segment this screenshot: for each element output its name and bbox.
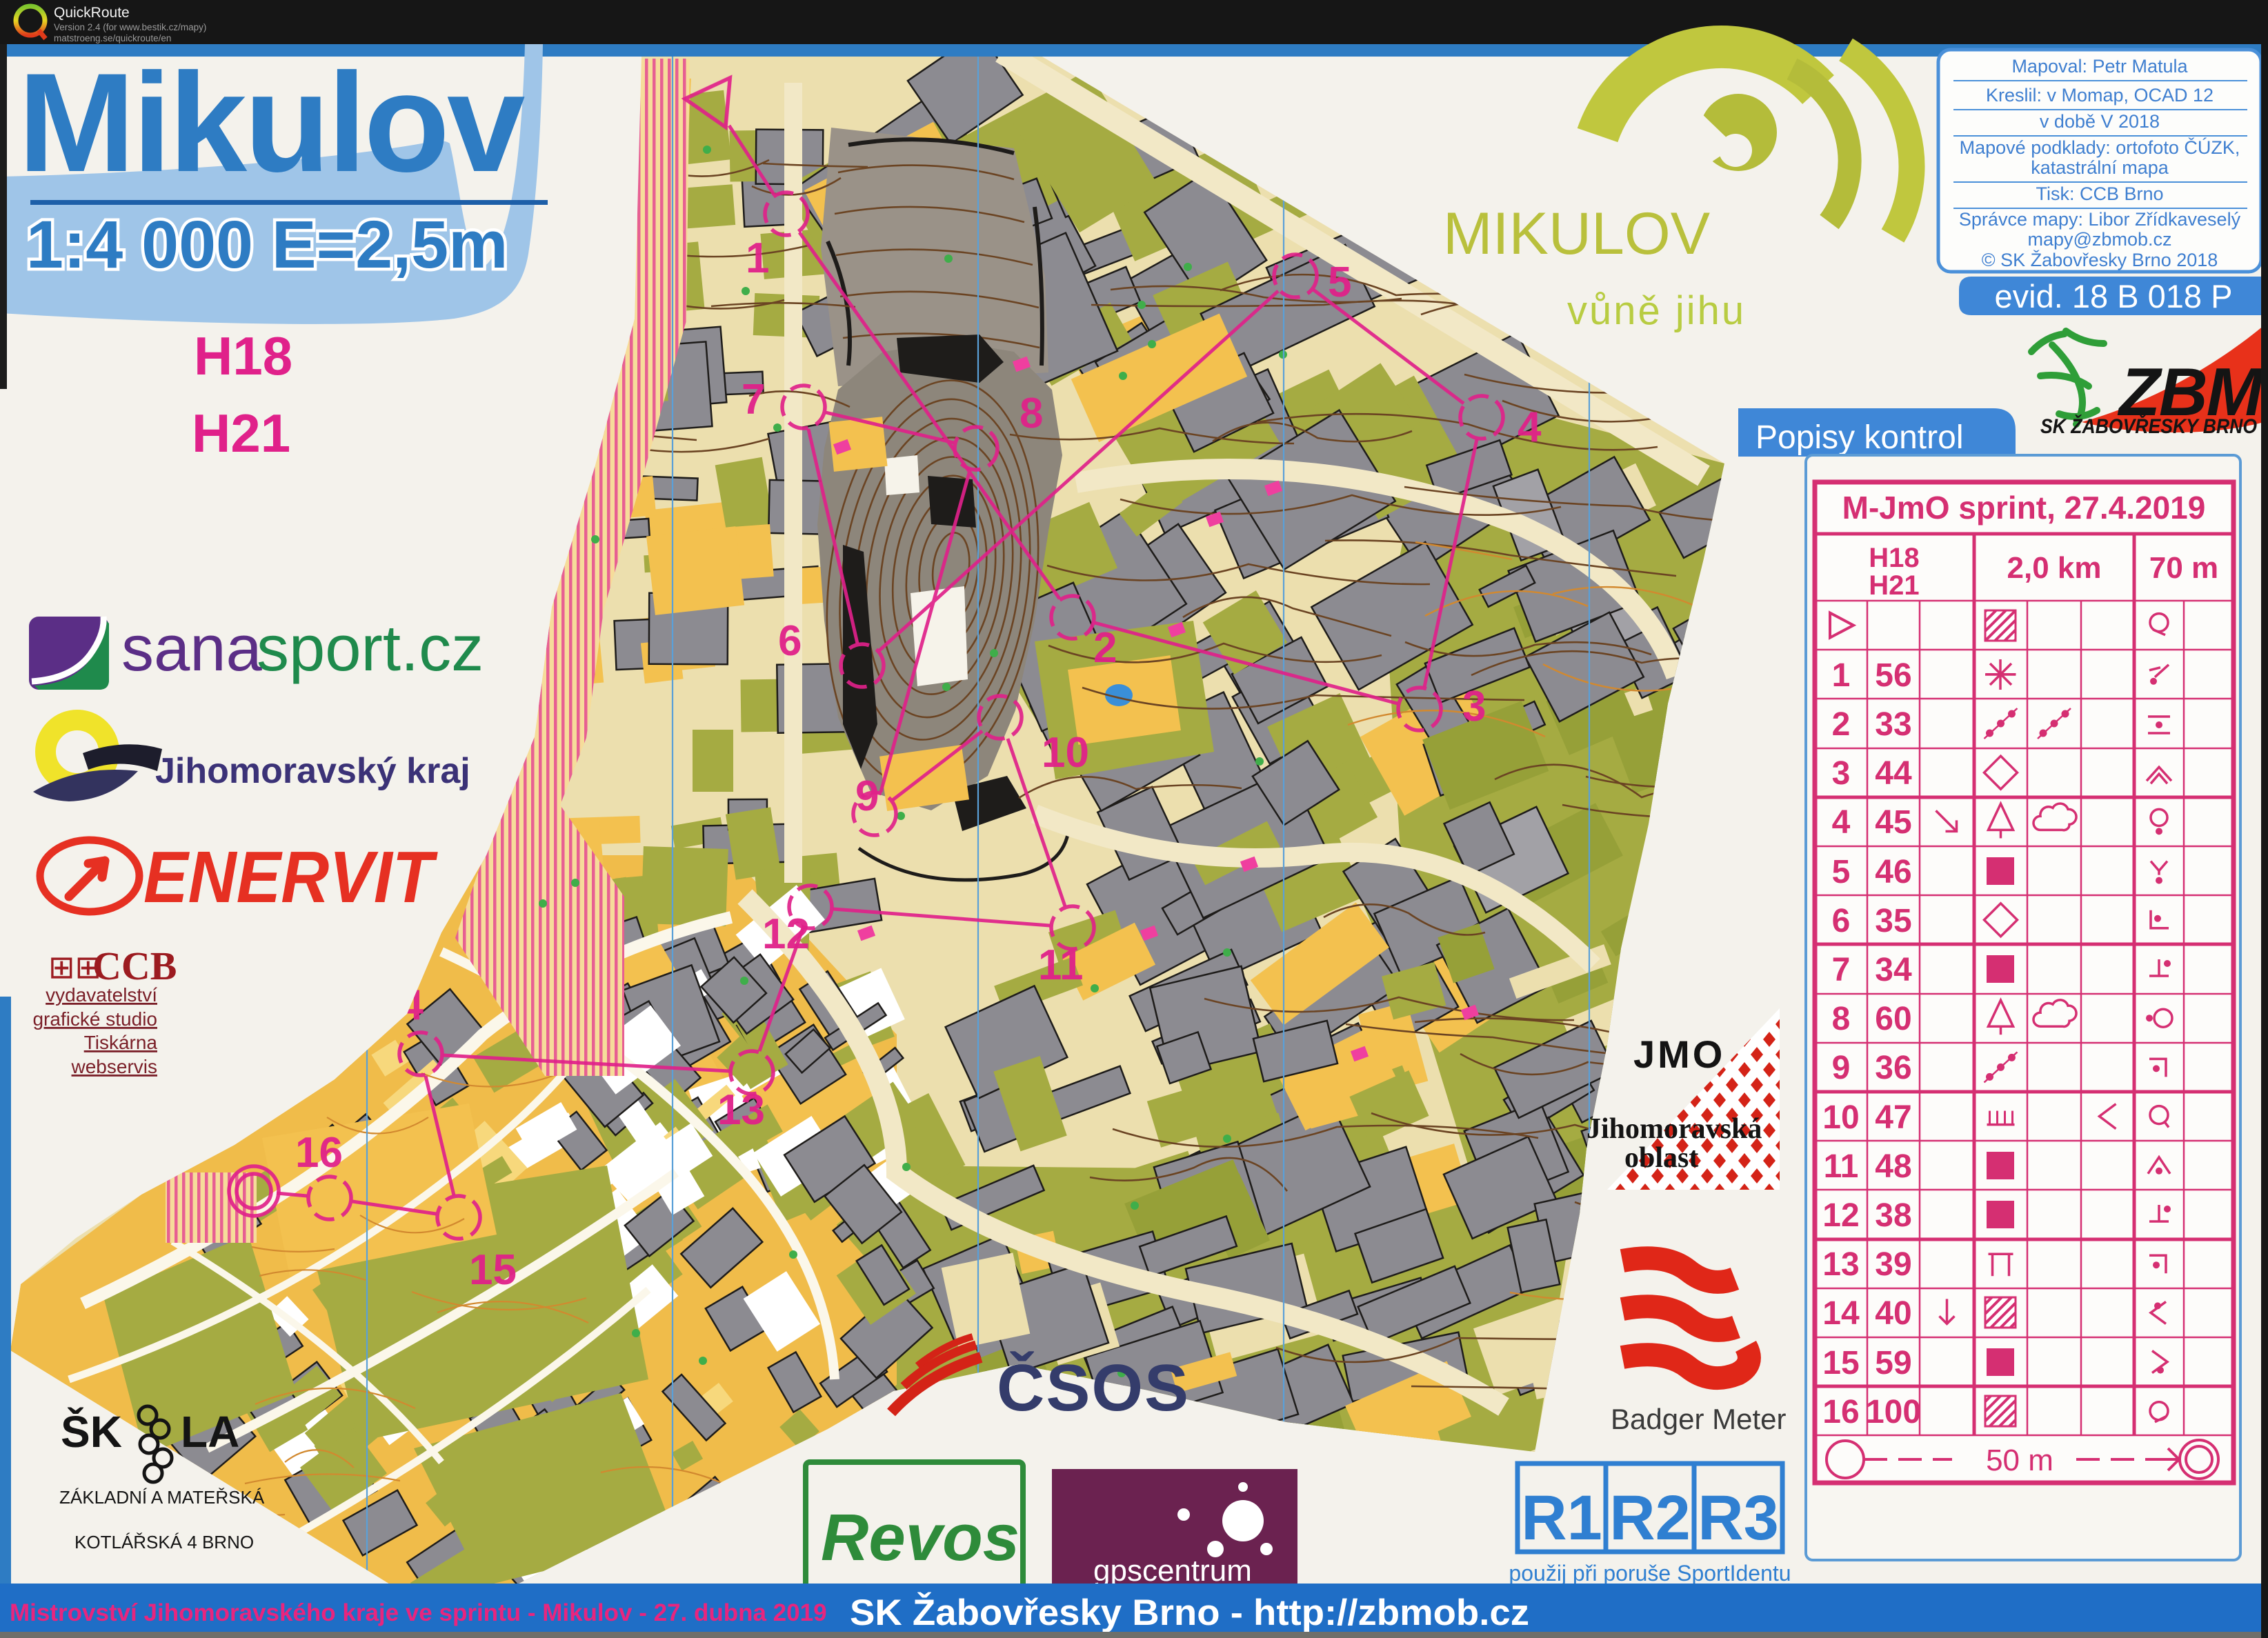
svg-text:evid. 18 B 018 P: evid. 18 B 018 P <box>1995 278 2233 314</box>
svg-text:4: 4 <box>1518 403 1542 451</box>
svg-text:60: 60 <box>1875 1001 1911 1037</box>
svg-text:Mikulov: Mikulov <box>18 44 525 201</box>
svg-text:7: 7 <box>742 376 765 423</box>
svg-text:Správce mapy: Libor Zřídkavese: Správce mapy: Libor Zřídkaveselý <box>1959 209 2241 230</box>
svg-text:6: 6 <box>778 617 802 665</box>
svg-text:11: 11 <box>1824 1148 1859 1185</box>
svg-text:© SK Žabovřesky Brno 2018: © SK Žabovřesky Brno 2018 <box>1982 249 2218 270</box>
svg-text:Mistrovství Jihomoravského kra: Mistrovství Jihomoravského kraje ve spri… <box>10 1599 827 1626</box>
svg-text:ENERVIT: ENERVIT <box>143 837 439 918</box>
svg-text:v době V 2018: v době V 2018 <box>2040 111 2160 132</box>
svg-text:QuickRoute: QuickRoute <box>54 5 130 21</box>
svg-text:MIKULOV: MIKULOV <box>1443 201 1710 267</box>
svg-text:2,0 km: 2,0 km <box>2007 551 2102 585</box>
svg-text:webservis: webservis <box>71 1056 157 1077</box>
svg-text:50 m: 50 m <box>1986 1444 2053 1477</box>
svg-text:1:4 000 E=2,5m: 1:4 000 E=2,5m <box>26 207 508 282</box>
svg-text:8: 8 <box>1019 390 1043 437</box>
svg-text:56: 56 <box>1875 657 1911 694</box>
svg-text:sport.cz: sport.cz <box>257 612 484 684</box>
svg-text:2: 2 <box>1093 624 1117 672</box>
svg-text:CCB: CCB <box>92 943 177 988</box>
svg-text:SK Žabovřesky Brno - http://zb: SK Žabovřesky Brno - http://zbmob.cz <box>850 1591 1529 1633</box>
svg-text:16: 16 <box>295 1129 343 1177</box>
svg-text:vydavatelství: vydavatelství <box>46 984 157 1006</box>
svg-text:Jihomoravský kraj: Jihomoravský kraj <box>155 751 470 791</box>
svg-text:H21: H21 <box>1869 570 1919 601</box>
svg-text:SK ŽABOVŘESKY BRNO: SK ŽABOVŘESKY BRNO <box>2040 415 2257 438</box>
svg-text:H18: H18 <box>1869 543 1919 573</box>
svg-text:JMO: JMO <box>1633 1032 1725 1076</box>
svg-text:38: 38 <box>1875 1197 1911 1234</box>
svg-text:10: 10 <box>1822 1099 1859 1136</box>
svg-text:Badger Meter: Badger Meter <box>1611 1403 1786 1435</box>
svg-text:40: 40 <box>1875 1295 1911 1332</box>
svg-text:48: 48 <box>1875 1148 1911 1185</box>
svg-text:1: 1 <box>746 234 769 282</box>
svg-text:14: 14 <box>1822 1295 1860 1332</box>
svg-text:KOTLÁŘSKÁ 4 BRNO: KOTLÁŘSKÁ 4 BRNO <box>74 1532 254 1552</box>
svg-text:15: 15 <box>1822 1345 1859 1381</box>
svg-text:13: 13 <box>1822 1246 1859 1283</box>
svg-text:Revos: Revos <box>821 1501 1019 1575</box>
svg-text:6: 6 <box>1832 903 1851 939</box>
svg-text:oblast: oblast <box>1624 1142 1698 1174</box>
svg-text:3: 3 <box>1832 755 1851 792</box>
svg-text:sana: sana <box>121 612 263 684</box>
svg-text:39: 39 <box>1875 1246 1911 1283</box>
svg-text:15: 15 <box>469 1246 517 1294</box>
svg-text:100: 100 <box>1866 1394 1921 1430</box>
svg-text:44: 44 <box>1875 755 1912 792</box>
svg-text:33: 33 <box>1875 706 1911 743</box>
svg-text:5: 5 <box>1832 854 1851 890</box>
svg-text:35: 35 <box>1875 903 1911 939</box>
svg-text:LA: LA <box>181 1407 239 1457</box>
svg-text:Popisy kontrol: Popisy kontrol <box>1755 419 1963 456</box>
svg-text:12: 12 <box>1822 1197 1859 1234</box>
svg-text:11: 11 <box>1038 941 1084 989</box>
svg-text:H21: H21 <box>192 403 290 463</box>
svg-text:70 m: 70 m <box>2149 551 2218 585</box>
svg-text:R3: R3 <box>1698 1483 1779 1553</box>
svg-text:45: 45 <box>1875 804 1911 841</box>
svg-text:47: 47 <box>1875 1099 1911 1136</box>
svg-text:1: 1 <box>1832 657 1851 694</box>
svg-text:grafické studio: grafické studio <box>32 1008 157 1030</box>
svg-text:16: 16 <box>1822 1394 1859 1430</box>
svg-text:8: 8 <box>1832 1001 1851 1037</box>
svg-text:M-JmO sprint, 27.4.2019: M-JmO sprint, 27.4.2019 <box>1842 490 2206 526</box>
svg-text:Version 2.4 (for www.bestik.c: Version 2.4 (for www.bestik.cz/mapy) <box>54 22 206 32</box>
svg-text:ŠK: ŠK <box>61 1406 122 1457</box>
svg-text:R2: R2 <box>1609 1483 1691 1553</box>
svg-text:mapy@zbmob.cz: mapy@zbmob.cz <box>2028 229 2172 250</box>
svg-text:10: 10 <box>1042 729 1089 777</box>
svg-text:4: 4 <box>1832 804 1851 841</box>
svg-text:ZÁKLADNÍ A MATEŘSKÁ: ZÁKLADNÍ A MATEŘSKÁ <box>59 1487 265 1508</box>
svg-text:3: 3 <box>1462 683 1486 730</box>
svg-text:Tiskárna: Tiskárna <box>84 1032 158 1053</box>
svg-text:Jihomoravská: Jihomoravská <box>1586 1113 1762 1145</box>
svg-text:Tisk: CCB Brno: Tisk: CCB Brno <box>2036 183 2163 204</box>
svg-text:H18: H18 <box>194 326 292 386</box>
svg-text:použij při poruše SportIdentu: použij při poruše SportIdentu <box>1509 1561 1791 1586</box>
svg-text:ČSOS: ČSOS <box>997 1350 1190 1425</box>
svg-text:Kreslil: v Momap, OCAD 12: Kreslil: v Momap, OCAD 12 <box>1986 85 2214 106</box>
svg-text:matstroeng.se/quickroute/en: matstroeng.se/quickroute/en <box>54 33 171 43</box>
svg-text:gpscentrum: gpscentrum <box>1093 1554 1252 1588</box>
svg-text:5: 5 <box>1328 259 1351 306</box>
svg-text:7: 7 <box>1832 952 1851 988</box>
svg-text:36: 36 <box>1875 1050 1911 1086</box>
svg-text:13: 13 <box>717 1086 765 1134</box>
svg-text:34: 34 <box>1875 952 1912 988</box>
svg-text:9: 9 <box>855 772 879 820</box>
svg-text:vůně jihu: vůně jihu <box>1567 288 1746 333</box>
svg-text:R1: R1 <box>1521 1483 1602 1553</box>
svg-text:9: 9 <box>1832 1050 1851 1086</box>
svg-text:2: 2 <box>1832 706 1851 743</box>
svg-text:Mapoval: Petr Matula: Mapoval: Petr Matula <box>2011 56 2188 77</box>
svg-text:12: 12 <box>762 910 810 958</box>
svg-text:Mapové podklady: ortofoto ČÚZK: Mapové podklady: ortofoto ČÚZK, <box>1960 137 2240 158</box>
svg-text:59: 59 <box>1875 1345 1911 1381</box>
svg-text:46: 46 <box>1875 854 1911 890</box>
svg-text:katastrální mapa: katastrální mapa <box>2031 157 2169 178</box>
